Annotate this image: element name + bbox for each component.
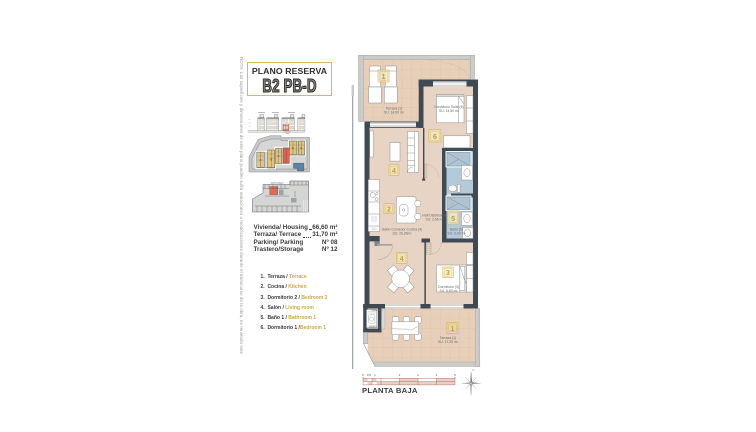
- svg-text:2: 2: [387, 207, 391, 214]
- svg-text:SU: 3,40 m²: SU: 3,40 m²: [447, 232, 466, 236]
- svg-text:3: 3: [446, 270, 450, 277]
- svg-text:SU: 26,26m²: SU: 26,26m²: [392, 232, 412, 236]
- svg-text:5: 5: [454, 373, 456, 377]
- svg-text:0: 0: [362, 373, 364, 377]
- svg-text:SU: 2,56 m²: SU: 2,56 m²: [425, 218, 444, 222]
- svg-text:1: 1: [382, 72, 386, 81]
- svg-text:0,5: 0,5: [367, 373, 372, 377]
- svg-text:LAVADERO: LAVADERO: [371, 309, 382, 312]
- svg-text:SU: 8,60 m²: SU: 8,60 m²: [439, 289, 458, 293]
- svg-text:4: 4: [392, 168, 396, 175]
- svg-text:4: 4: [400, 256, 404, 263]
- svg-text:1: 1: [374, 373, 376, 377]
- svg-text:SU: 14,50 m²: SU: 14,50 m²: [439, 109, 460, 113]
- svg-text:LAVADORA: LAVADORA: [369, 326, 381, 329]
- svg-text:SU: 14,50 m²: SU: 14,50 m²: [384, 111, 405, 115]
- svg-text:N: N: [473, 369, 475, 372]
- svg-text:SU: 17,20 m²: SU: 17,20 m²: [438, 340, 459, 344]
- svg-text:3: 3: [417, 373, 419, 377]
- svg-text:5: 5: [451, 214, 455, 223]
- svg-text:4: 4: [436, 373, 438, 377]
- svg-text:1: 1: [450, 326, 454, 333]
- svg-text:6: 6: [433, 132, 437, 141]
- svg-text:2: 2: [399, 373, 401, 377]
